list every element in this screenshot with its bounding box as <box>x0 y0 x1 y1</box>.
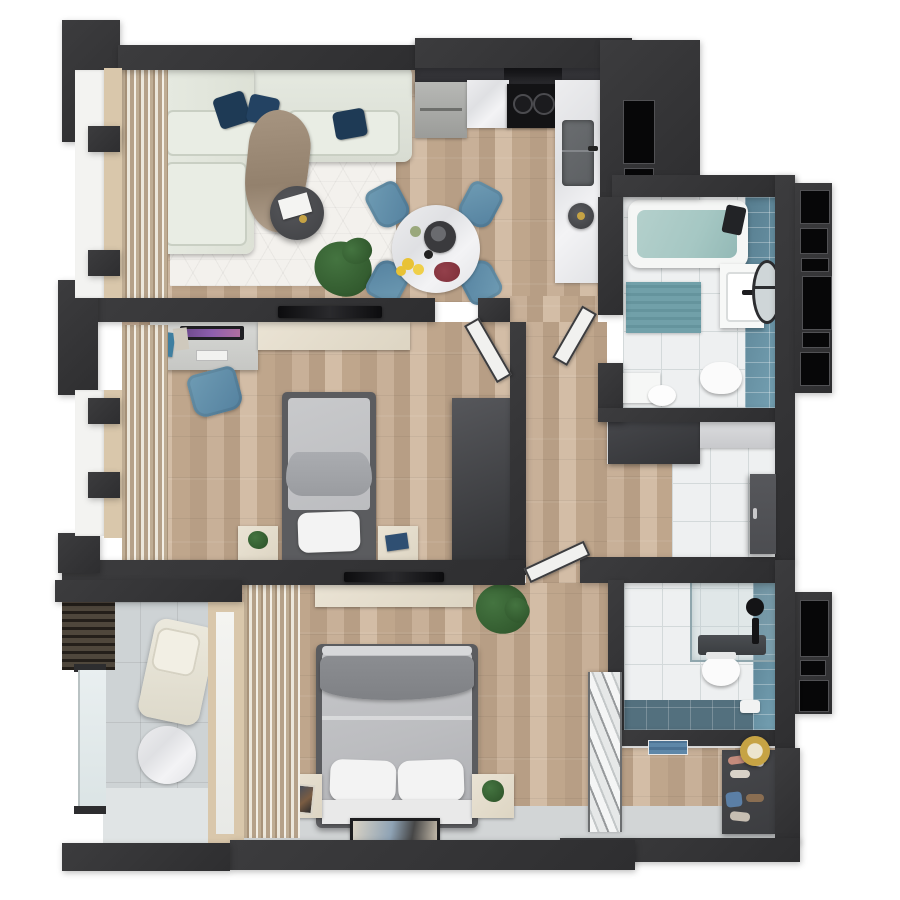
entry-cabinet-light <box>700 420 775 448</box>
glass-railing <box>78 670 106 810</box>
tv-sideboard <box>258 322 410 350</box>
window-pane <box>800 660 826 676</box>
sofa-cushion-navy <box>332 107 368 140</box>
window-pane <box>801 258 829 272</box>
kitchen-unit-handle <box>420 108 462 111</box>
balcony-slat-screen <box>62 592 115 670</box>
lemon <box>396 266 406 276</box>
double-bed-mattress-edge <box>322 646 472 655</box>
wall-hung-toilet <box>700 362 742 394</box>
double-bed-throw <box>320 656 474 700</box>
balcony-south-wall <box>62 843 230 871</box>
window-mullion <box>88 398 120 424</box>
mirror-crossbar <box>753 286 775 289</box>
shoes <box>746 794 764 802</box>
monitor-screen <box>184 329 240 337</box>
toilet-second <box>702 656 740 686</box>
sink-faucet <box>588 146 598 151</box>
railing-frame <box>74 806 106 814</box>
bed-pillow <box>397 759 464 803</box>
bed-pillow <box>329 759 396 803</box>
left-wall-block <box>58 533 100 573</box>
master-tv <box>344 572 444 582</box>
shower-head <box>746 598 764 616</box>
east-wall <box>775 175 795 562</box>
window-pane <box>799 680 829 712</box>
single-bed-throw <box>286 452 372 496</box>
toilet-tank-line <box>706 652 736 659</box>
bathroom1-north-wall <box>612 175 795 197</box>
east-wall <box>775 748 800 843</box>
apartment-floor-plan: 3D apartment floor plan - top-down rende… <box>0 0 900 900</box>
towels-blue <box>648 740 688 755</box>
kitchen-sink <box>562 120 594 186</box>
kettle-lid <box>577 212 585 220</box>
sofa-chaise-cushion <box>165 162 247 246</box>
lounge-chair-cushion <box>150 626 202 678</box>
duvet-fold-line <box>322 716 472 720</box>
window-pane <box>802 276 832 330</box>
bath-mat <box>626 282 701 333</box>
zigzag-partition <box>588 672 622 832</box>
master-curtains <box>244 585 300 838</box>
living-bedroom-wall <box>95 298 435 322</box>
window-mullion <box>88 472 120 498</box>
balcony-north-wall <box>55 580 242 602</box>
serving-tray <box>424 221 456 253</box>
lemon <box>413 264 424 275</box>
cooktop-burner <box>533 93 555 115</box>
entrance-door-handle <box>753 508 757 519</box>
window-mullion <box>88 126 120 152</box>
exterior-wall <box>118 45 415 70</box>
nightstand-plant <box>482 780 504 802</box>
bedroom-wardrobe <box>452 398 510 575</box>
shoes <box>730 811 751 822</box>
keyboard <box>196 350 228 361</box>
east-wall <box>775 560 795 750</box>
window-pane <box>802 332 830 348</box>
toilet-bowl <box>648 385 676 406</box>
desk-book <box>173 327 190 351</box>
window-pane <box>800 228 828 254</box>
entry-console-dark <box>608 420 700 464</box>
nightstand-plant <box>248 531 268 549</box>
window-mullion <box>88 250 120 276</box>
shower-fixture-bar <box>752 618 759 644</box>
window-pane <box>800 352 830 386</box>
bedroom-curtains <box>122 325 168 560</box>
hallway-west-wall <box>510 322 526 575</box>
window-pane <box>623 100 655 164</box>
cup-black <box>424 250 433 259</box>
bathroom1-south-wall <box>598 408 778 422</box>
cooktop-burner <box>513 94 533 114</box>
shoes <box>730 770 750 778</box>
balcony-side-table <box>138 726 196 784</box>
table-decor-gold <box>299 215 307 223</box>
toilet-paper-item <box>740 700 760 713</box>
bathtub-water <box>637 210 737 258</box>
bedroom-tv <box>278 306 382 318</box>
hallway-floor-east <box>607 464 672 559</box>
bathroom1-west-wall <box>598 197 623 315</box>
window-pane <box>800 190 830 224</box>
cup-green <box>410 226 421 237</box>
south-wall <box>230 840 635 870</box>
window-pane <box>800 600 829 657</box>
living-curtains <box>122 64 168 300</box>
counter-left <box>467 80 509 128</box>
living-bedroom-wall <box>478 298 510 322</box>
nightstand-book <box>385 533 409 552</box>
bag-blue <box>725 791 742 808</box>
master-dresser <box>315 585 473 607</box>
balcony-door-glass <box>216 612 234 834</box>
single-bed-pillow <box>297 511 360 553</box>
balcony-floor-light <box>103 788 215 843</box>
round-gold-mirror <box>740 736 770 766</box>
